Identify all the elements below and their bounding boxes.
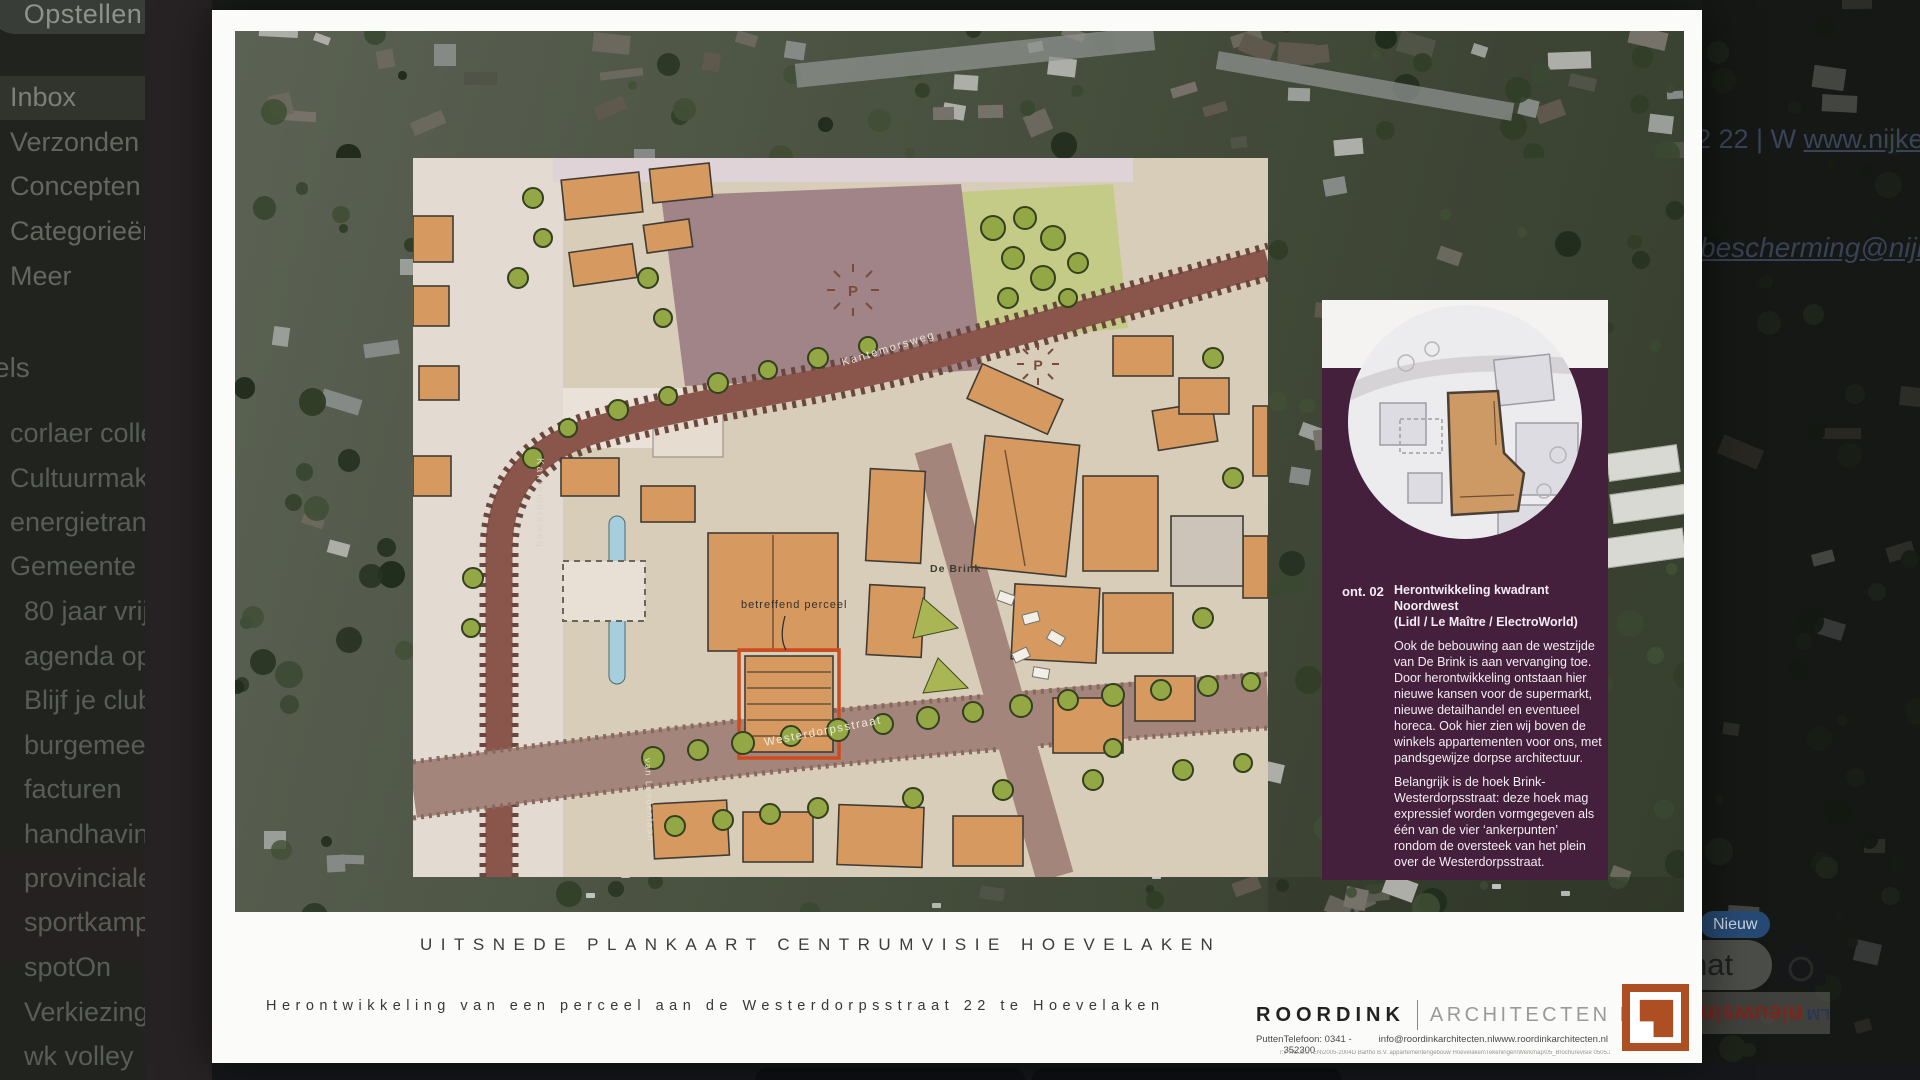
nieuw-badge[interactable]: Nieuw [1700, 911, 1770, 938]
tree-texture [1711, 68, 1736, 93]
car-texture [621, 877, 630, 878]
tree-texture [398, 71, 407, 80]
tree-texture [240, 616, 253, 629]
tree-texture [359, 564, 382, 587]
tree-texture [1372, 50, 1381, 59]
tree-texture [1020, 100, 1036, 116]
tree-texture [657, 53, 680, 76]
street-label-kantemorsweg-vertical: Kantemorsweg [534, 458, 545, 549]
tree-texture [1276, 879, 1289, 892]
email-list-edge [145, 0, 212, 1080]
tree-texture [1803, 304, 1824, 325]
roof-texture [1436, 246, 1462, 266]
roof-texture [1822, 428, 1861, 438]
roof-texture [592, 32, 631, 54]
tree-texture [1905, 698, 1920, 725]
roof-texture [1230, 31, 1263, 49]
tree-texture [1051, 132, 1078, 158]
tree-texture [1269, 240, 1289, 260]
firm-logo-mark [1630, 992, 1681, 1043]
roof-texture [1289, 467, 1311, 486]
roof-texture [1812, 64, 1846, 90]
tree-texture [1796, 633, 1813, 650]
tree-texture [1523, 143, 1544, 158]
tree-texture [1304, 400, 1315, 411]
tree-texture [1846, 768, 1865, 787]
tree-texture [301, 903, 328, 912]
tree-texture [1517, 227, 1528, 238]
tree-texture [1268, 391, 1287, 410]
roof-texture [942, 102, 966, 121]
roof-texture [1471, 43, 1489, 58]
flipped-news-logo: LM nieuwsin [1700, 992, 1830, 1034]
tree-texture [1269, 582, 1283, 596]
tree-texture [1617, 610, 1644, 637]
roof-texture [1548, 51, 1591, 69]
tree-texture [1412, 893, 1440, 912]
tree-texture [235, 377, 255, 398]
roof-texture [1517, 97, 1539, 118]
image-viewer: P P Kantemorsweg Kantemorsweg van Lynden… [212, 10, 1702, 1063]
tree-texture [336, 627, 363, 654]
firm-divider [1417, 1000, 1418, 1030]
roof-texture [327, 539, 351, 557]
tree-texture [1816, 857, 1838, 879]
roof-texture [409, 110, 446, 136]
dock[interactable] [755, 1068, 1025, 1080]
tree-texture [905, 148, 915, 158]
tree-texture [296, 182, 308, 194]
roof-texture [1813, 616, 1846, 641]
tree-texture [1705, 838, 1732, 865]
roof-texture [1333, 138, 1364, 157]
tree-texture [1279, 551, 1304, 576]
roof-texture [327, 855, 346, 873]
car-texture [932, 903, 941, 908]
tree-texture [338, 449, 361, 472]
roof-texture [363, 340, 400, 359]
roof-texture [267, 92, 294, 118]
tree-texture [250, 649, 276, 675]
car-texture [1492, 884, 1501, 889]
panel-title: Herontwikkeling kwadrant Noordwest [1394, 582, 1602, 614]
tree-texture [1071, 85, 1082, 96]
tree-texture [242, 606, 264, 628]
tree-texture [1440, 209, 1451, 220]
plan-map: P P Kantemorsweg Kantemorsweg van Lynden… [413, 158, 1268, 877]
screen: Opstellen Inbox Verzonden Concepten Cate… [0, 0, 1920, 1080]
roof-texture [400, 259, 413, 276]
tree-texture [1375, 31, 1397, 49]
roof-texture [634, 149, 655, 158]
tree-texture [1146, 885, 1155, 894]
roof-texture [1382, 877, 1419, 903]
roof-texture [702, 52, 722, 72]
roof-texture [1842, 0, 1872, 9]
tree-texture [1282, 31, 1291, 33]
tree-texture [1665, 850, 1684, 878]
roof-texture [1268, 762, 1284, 784]
roof-texture [1288, 88, 1311, 101]
roof-texture [1821, 95, 1856, 114]
website-link[interactable]: www.nijkerk [1804, 124, 1920, 154]
info-panel: ont. 02 Herontwikkeling kwadrant Noordwe… [1322, 300, 1608, 880]
tree-texture [1531, 63, 1552, 84]
roof-texture [258, 31, 297, 38]
tree-texture [608, 881, 624, 897]
tree-texture [377, 538, 396, 557]
roof-texture [1202, 101, 1228, 117]
roof-texture [278, 110, 315, 122]
tree-texture [1847, 937, 1858, 948]
tree-texture [1632, 251, 1650, 269]
tree-texture [1419, 888, 1447, 912]
aerial-bottom [413, 877, 1684, 912]
tree-texture [1413, 53, 1432, 72]
plan-caption-subtitle: Herontwikkeling van een perceel aan de W… [266, 998, 1165, 1014]
roof-texture [301, 514, 324, 529]
roof-texture [376, 49, 396, 70]
tree-texture [966, 31, 981, 38]
roof-texture [593, 96, 627, 120]
roof-texture [1811, 549, 1835, 566]
roof-texture [1717, 435, 1765, 471]
firm-fineprint: I:\PROJECTEN\2005-2004D Bartho B.V. appa… [1280, 1050, 1610, 1056]
panel-text: Herontwikkeling kwadrant Noordwest (Lidl… [1394, 582, 1602, 870]
panel-subtitle: (Lidl / Le Maître / ElectroWorld) [1394, 614, 1602, 630]
roof-texture [1568, 73, 1597, 92]
tree-texture [1901, 550, 1919, 568]
tree-texture [378, 561, 405, 588]
flipped-logo-text: nieuwsin [1700, 999, 1803, 1027]
roof-texture [953, 75, 978, 92]
tree-texture [1632, 46, 1653, 67]
roof-texture [434, 44, 456, 66]
tree-texture [1707, 41, 1729, 63]
tree-texture [1837, 715, 1848, 726]
roof-texture [979, 885, 1004, 901]
roof-texture [933, 107, 955, 120]
tree-texture [404, 238, 413, 252]
labels-header: els [0, 352, 30, 384]
tree-texture [1299, 399, 1313, 413]
tree-texture [915, 83, 931, 99]
email-header-fragment: 2 22 | W www.nijkerk [1696, 124, 1920, 155]
tree-texture [1505, 77, 1531, 103]
roof-texture [464, 72, 497, 85]
tree-texture [339, 224, 348, 233]
roof-texture [1885, 540, 1916, 563]
roof-texture [978, 104, 1003, 117]
tree-texture [1673, 662, 1684, 689]
roof-texture [1648, 113, 1674, 133]
tree-texture [1666, 201, 1684, 219]
tree-texture [1827, 161, 1836, 170]
tree-texture [1630, 95, 1649, 114]
tree-texture [1346, 887, 1357, 898]
camera-icon [1772, 940, 1830, 992]
tree-texture [299, 388, 326, 415]
tree-texture [671, 107, 689, 125]
tree-texture [1806, 423, 1824, 441]
roof-texture [1671, 142, 1684, 158]
roof-texture [1627, 31, 1668, 51]
tree-texture [1881, 887, 1900, 906]
tree-texture [1715, 795, 1724, 804]
inset-map [1348, 305, 1582, 539]
tree-texture [1835, 911, 1844, 920]
roof-texture [784, 40, 806, 60]
car-texture [586, 893, 595, 898]
tree-texture [1279, 566, 1307, 594]
roof-texture [1853, 1018, 1872, 1034]
email-address-link[interactable]: sbescherming@nijke [1686, 232, 1920, 264]
tree-texture [1295, 666, 1323, 694]
tree-texture [395, 641, 413, 660]
tree-texture [1797, 608, 1824, 635]
tree-texture [769, 145, 793, 158]
tree-texture [1871, 216, 1881, 226]
square-label-de-brink: De Brink [930, 563, 981, 575]
tree-texture [285, 494, 303, 512]
roof-texture [1291, 44, 1330, 66]
header-text: 2 22 | W [1696, 124, 1804, 154]
tree-texture [1649, 340, 1661, 352]
tree-texture [235, 677, 249, 691]
tree-texture [1837, 443, 1863, 469]
tree-texture [1811, 852, 1833, 874]
tree-texture [1788, 659, 1808, 679]
tree-texture [1146, 891, 1163, 908]
tree-texture [1759, 275, 1773, 289]
tree-texture [1719, 1035, 1746, 1062]
tree-texture [280, 695, 299, 714]
plan-caption-title: UITSNEDE PLANKAART CENTRUMVISIE HOEVELAK… [420, 935, 1221, 955]
tree-texture [235, 680, 244, 694]
parking-icon: P [1033, 357, 1042, 373]
roof-texture [1323, 177, 1347, 197]
tree-texture [800, 902, 820, 912]
tree-texture [1627, 235, 1641, 249]
tree-texture [1654, 799, 1674, 819]
roof-texture [272, 326, 291, 347]
roof-texture [1722, 722, 1739, 736]
tree-texture [1875, 172, 1901, 198]
roof-texture [313, 32, 331, 45]
tree-texture [1376, 121, 1395, 140]
tree-texture [1845, 384, 1865, 404]
tree-texture [1788, 101, 1801, 114]
tree-texture [1665, 84, 1675, 94]
firm-name-row: ROORDINK ARCHITECTEN BNA [1256, 1000, 1671, 1030]
tree-texture [1815, 18, 1834, 37]
roof-texture [1396, 31, 1436, 61]
roof-texture [1864, 839, 1885, 854]
tree-texture [868, 109, 891, 132]
tree-texture [1890, 857, 1904, 871]
tree-texture [275, 661, 303, 689]
car-texture [1152, 877, 1161, 879]
tree-texture [1647, 647, 1664, 664]
parcel-label: betreffend perceel [741, 599, 847, 611]
roof-texture [599, 67, 643, 81]
roof-texture [1231, 877, 1261, 897]
firm-logo [1622, 984, 1689, 1051]
tree-texture [1861, 832, 1878, 849]
roof-texture [1231, 136, 1248, 149]
tree-texture [673, 98, 696, 121]
tree-texture [304, 496, 329, 521]
roof-texture [1343, 886, 1368, 911]
roof-texture [1900, 386, 1920, 407]
tree-texture [253, 196, 277, 220]
tree-texture [336, 144, 360, 158]
roof-texture [264, 831, 286, 849]
tree-texture [1868, 583, 1886, 601]
tree-texture [271, 840, 292, 861]
tree-texture [321, 836, 332, 847]
roof-texture [1853, 939, 1882, 965]
roof-texture [1667, 90, 1683, 99]
parking-icon: P [848, 283, 858, 300]
roof-texture [1022, 109, 1052, 138]
roof-texture [341, 854, 365, 864]
tree-texture [648, 877, 663, 889]
tree-texture [1807, 726, 1832, 751]
roof-texture [735, 31, 759, 47]
tree-texture [1824, 798, 1852, 826]
flipped-logo-mark: LM [1807, 1004, 1830, 1022]
firm-name: ROORDINK [1256, 1004, 1405, 1027]
tree-texture [556, 881, 582, 907]
car-texture [1561, 891, 1570, 896]
tree-texture [628, 81, 637, 90]
panel-body-2: Belangrijk is de hoek Brink-Westerdorpss… [1394, 774, 1602, 870]
tree-texture [1666, 563, 1678, 575]
panel-body-1: Ook de bebouwing aan de westzijde van De… [1394, 638, 1602, 766]
roof-texture [1170, 81, 1198, 98]
tree-texture [1555, 231, 1581, 257]
tree-texture [1860, 164, 1872, 176]
tree-texture [1480, 881, 1488, 889]
dock[interactable] [1032, 1068, 1342, 1080]
panel-ref: ont. 02 [1342, 584, 1392, 599]
roof-texture [1534, 98, 1566, 123]
tree-texture [818, 117, 832, 131]
tree-texture [1742, 1043, 1756, 1057]
roof-texture [319, 389, 362, 416]
tree-texture [1757, 311, 1781, 335]
tree-texture [261, 99, 287, 125]
tree-texture [1608, 877, 1628, 889]
tree-texture [332, 206, 349, 223]
tree-texture [296, 463, 314, 481]
tree-texture [1654, 141, 1680, 158]
aerial-left [235, 158, 413, 912]
tree-texture [364, 31, 386, 45]
